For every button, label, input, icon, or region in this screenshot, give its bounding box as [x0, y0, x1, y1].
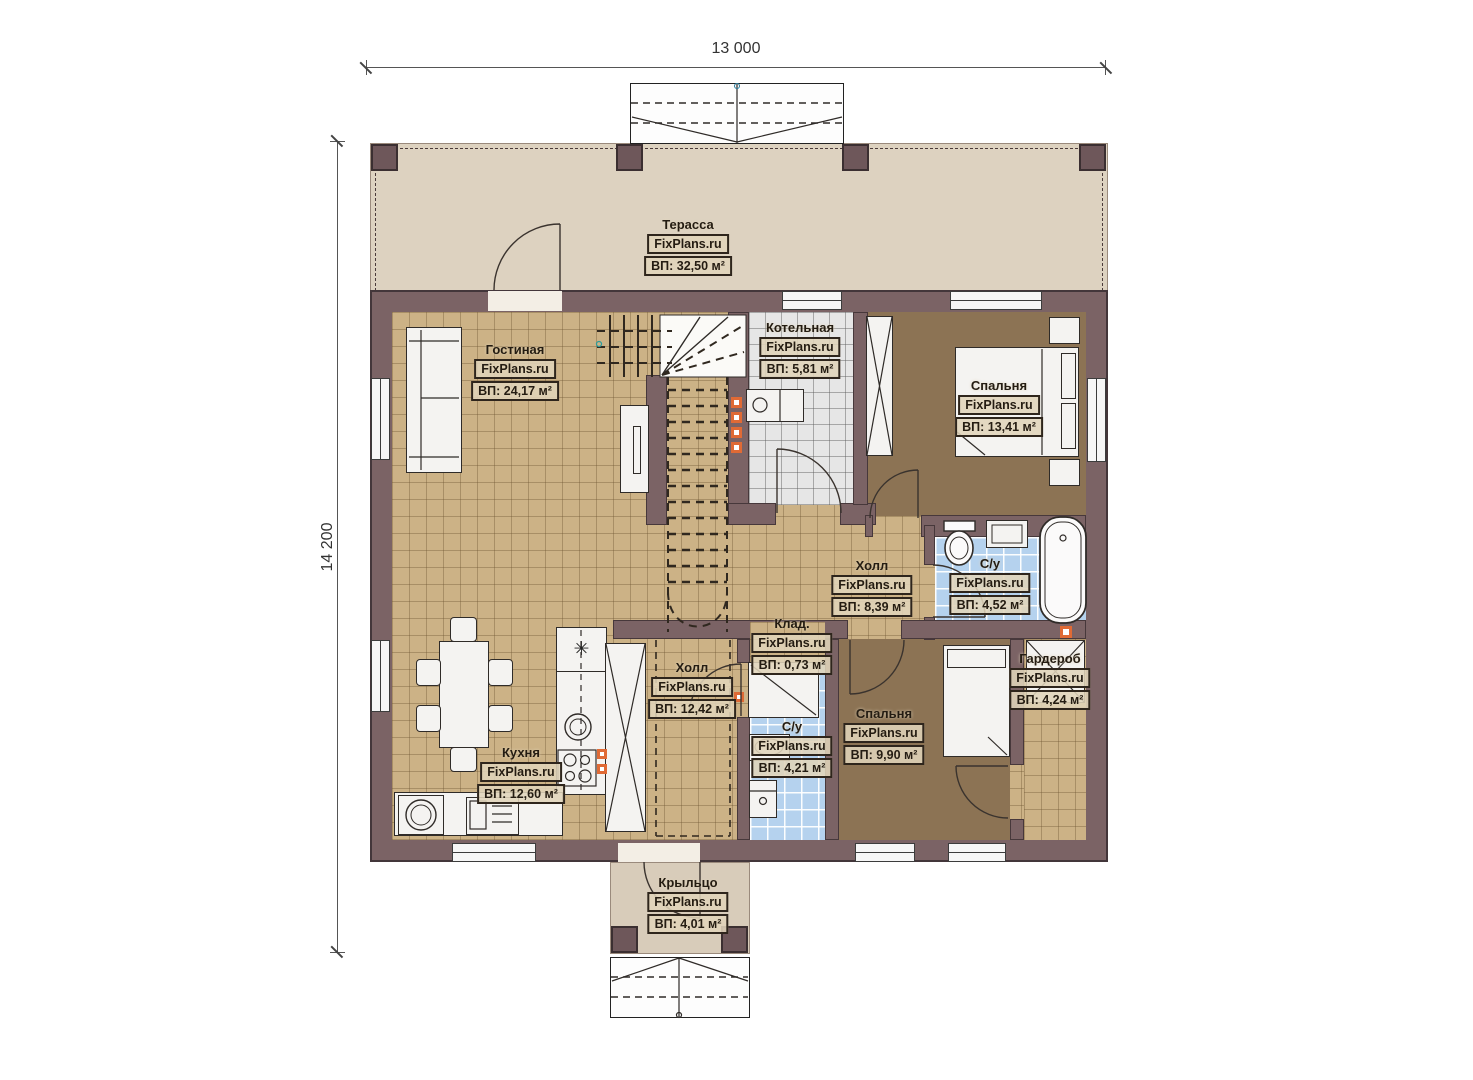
area-box: ВП: 4,24 м² [1010, 690, 1091, 710]
watermark-box: FixPlans.ru [759, 337, 840, 357]
dimension-width-line [366, 67, 1106, 68]
toilet-2 [749, 780, 777, 818]
watermark-box: FixPlans.ru [831, 575, 912, 595]
area-box: ВП: 12,42 м² [648, 699, 736, 719]
watermark-box: FixPlans.ru [474, 359, 555, 379]
window-living [371, 378, 390, 460]
room-label-terrace: Терасса FixPlans.ru ВП: 32,50 м² [644, 217, 732, 276]
room-title: Гардероб [1009, 651, 1090, 666]
room-title: Холл [831, 558, 912, 573]
wall-bedroom1-hall [865, 515, 873, 537]
radiator-marker [597, 749, 607, 759]
wall-boiler-hall [728, 503, 776, 525]
room-title: С/у [751, 719, 832, 734]
nightstand [1049, 459, 1080, 486]
terrace-column [842, 144, 869, 171]
room-label-bath2: С/у FixPlans.ru ВП: 4,21 м² [751, 719, 832, 778]
room-title: Холл [648, 660, 736, 675]
area-box: ВП: 12,60 м² [477, 784, 565, 804]
wall-bedroom2-wardrobe [1010, 819, 1024, 840]
wall-hall-bath1 [924, 525, 935, 565]
pillow [947, 649, 1006, 668]
window-bedroom2 [855, 843, 915, 862]
room-label-bedroom1: Спальня FixPlans.ru ВП: 13,41 м² [955, 378, 1043, 437]
area-box: ВП: 4,01 м² [648, 914, 729, 934]
window-bedroom1-right [1087, 378, 1106, 462]
floor-plan-canvas: 13 000 14 200 [0, 0, 1473, 1080]
room-label-wardrobe: Гардероб FixPlans.ru ВП: 4,24 м² [1009, 651, 1090, 710]
sofa [406, 327, 462, 473]
washing-machine [398, 795, 444, 835]
room-label-hall-upper: Холл FixPlans.ru ВП: 8,39 м² [831, 558, 912, 617]
room-title: Спальня [843, 706, 924, 721]
dining-table [439, 641, 489, 748]
room-title: Спальня [955, 378, 1043, 393]
watermark-box: FixPlans.ru [480, 762, 561, 782]
terrace-column [616, 144, 643, 171]
chair [450, 617, 477, 642]
dimension-height-label: 14 200 [319, 502, 337, 592]
nightstand [1049, 317, 1080, 344]
porch-stairs [610, 957, 750, 1018]
tv [633, 426, 641, 474]
watermark-box: FixPlans.ru [647, 892, 728, 912]
area-box: ВП: 13,41 м² [955, 417, 1043, 437]
wall-hall-lower [901, 620, 1086, 639]
pillow [1061, 403, 1076, 449]
room-label-porch: Крыльцо FixPlans.ru ВП: 4,01 м² [647, 875, 728, 934]
chair [488, 659, 513, 686]
chair [416, 705, 441, 732]
chair [416, 659, 441, 686]
radiator-marker [731, 442, 742, 453]
watermark-box: FixPlans.ru [647, 234, 728, 254]
area-box: ВП: 4,21 м² [752, 758, 833, 778]
watermark-box: FixPlans.ru [1009, 668, 1090, 688]
fridge-star-glyph: ✳ [574, 638, 590, 661]
closet-hall [605, 643, 646, 832]
terrace-deck [370, 143, 1108, 292]
pillow [1061, 353, 1076, 399]
area-box: ВП: 4,52 м² [950, 595, 1031, 615]
room-title: С/у [949, 556, 1030, 571]
chair [450, 747, 477, 772]
radiator-marker [1060, 626, 1072, 638]
front-door-opening [618, 843, 700, 862]
room-label-boiler: Котельная FixPlans.ru ВП: 5,81 м² [759, 320, 840, 379]
area-box: ВП: 0,73 м² [752, 655, 833, 675]
room-title: Кухня [477, 745, 565, 760]
wall-stair-living [646, 375, 667, 525]
radiator-marker [731, 412, 742, 423]
room-title: Клад. [751, 616, 832, 631]
watermark-box: FixPlans.ru [949, 573, 1030, 593]
boiler-unit [746, 389, 804, 422]
dimension-width-label: 13 000 [366, 40, 1106, 58]
terrace-door-opening [488, 291, 562, 311]
terrace-stairs [630, 83, 844, 144]
porch-column [611, 926, 638, 953]
area-box: ВП: 32,50 м² [644, 256, 732, 276]
area-box: ВП: 9,90 м² [844, 745, 925, 765]
room-label-storage: Клад. FixPlans.ru ВП: 0,73 м² [751, 616, 832, 675]
watermark-box: FixPlans.ru [651, 677, 732, 697]
watermark-box: FixPlans.ru [751, 736, 832, 756]
area-box: ВП: 5,81 м² [760, 359, 841, 379]
room-title: Терасса [644, 217, 732, 232]
wall-hall-bath2 [737, 639, 750, 663]
radiator-marker [731, 397, 742, 408]
closet-bedroom1 [866, 316, 893, 456]
room-title: Гостиная [471, 342, 559, 357]
room-label-hall-lower: Холл FixPlans.ru ВП: 12,42 м² [648, 660, 736, 719]
room-label-living: Гостиная FixPlans.ru ВП: 24,17 м² [471, 342, 559, 401]
chair [488, 705, 513, 732]
watermark-box: FixPlans.ru [843, 723, 924, 743]
radiator-marker [731, 427, 742, 438]
room-title: Крыльцо [647, 875, 728, 890]
window-bedroom2-right [948, 843, 1006, 862]
window-boiler [782, 291, 842, 310]
room-label-bath1: С/у FixPlans.ru ВП: 4,52 м² [949, 556, 1030, 615]
area-box: ВП: 8,39 м² [832, 597, 913, 617]
watermark-box: FixPlans.ru [751, 633, 832, 653]
window-kitchen-left [371, 640, 390, 712]
room-label-bedroom2: Спальня FixPlans.ru ВП: 9,90 м² [843, 706, 924, 765]
room-title: Котельная [759, 320, 840, 335]
room-label-kitchen: Кухня FixPlans.ru ВП: 12,60 м² [477, 745, 565, 804]
terrace-column [1079, 144, 1106, 171]
window-kitchen-bottom [452, 843, 536, 862]
watermark-box: FixPlans.ru [958, 395, 1039, 415]
area-box: ВП: 24,17 м² [471, 381, 559, 401]
dimension-height-line [337, 141, 338, 953]
radiator-marker [597, 764, 607, 774]
sink-1 [986, 520, 1028, 548]
window-bedroom1-top [950, 291, 1042, 310]
fridge-icon: ✳ [556, 627, 607, 672]
terrace-column [371, 144, 398, 171]
